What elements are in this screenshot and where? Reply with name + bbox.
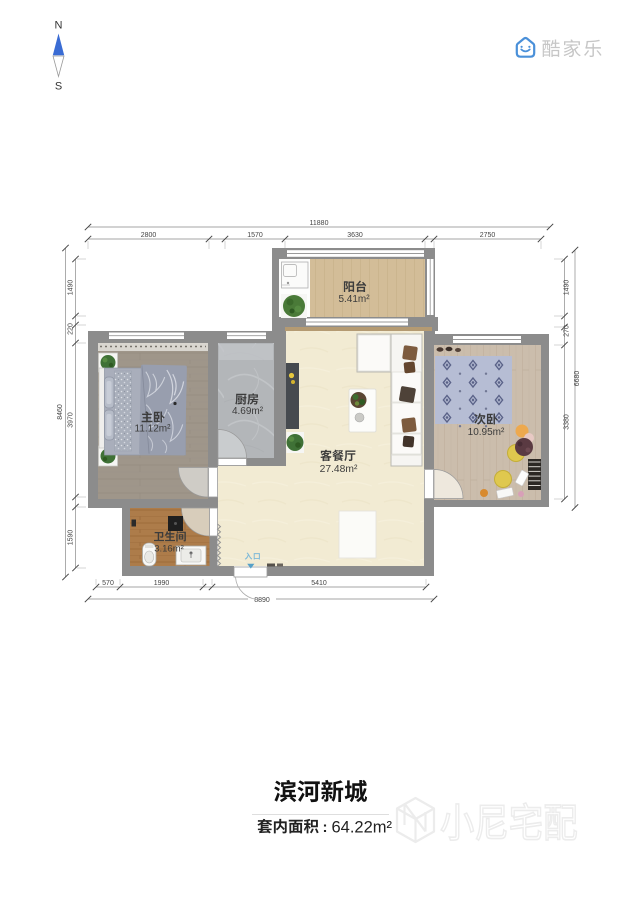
svg-text:2800: 2800 — [141, 232, 157, 239]
svg-text:1590: 1590 — [68, 530, 75, 546]
svg-text:5410: 5410 — [311, 580, 327, 587]
svg-text:570: 570 — [102, 580, 114, 587]
svg-text:3970: 3970 — [68, 412, 75, 428]
svg-text:6680: 6680 — [574, 371, 581, 387]
svg-text:1570: 1570 — [247, 232, 263, 239]
svg-text:2750: 2750 — [480, 232, 496, 239]
svg-text:8460: 8460 — [57, 404, 64, 420]
svg-text:1990: 1990 — [154, 580, 170, 587]
svg-text:220: 220 — [68, 323, 75, 335]
svg-text:11.12m²: 11.12m² — [135, 424, 172, 435]
svg-text:10.95m²: 10.95m² — [468, 427, 505, 438]
svg-text:S: S — [55, 81, 62, 93]
svg-text:8890: 8890 — [254, 597, 270, 604]
svg-text:11880: 11880 — [310, 220, 329, 227]
svg-text:N: N — [55, 20, 63, 32]
svg-text:3630: 3630 — [347, 232, 363, 239]
svg-text:4.69m²: 4.69m² — [232, 406, 264, 417]
svg-text:3.16m²: 3.16m² — [154, 544, 184, 555]
svg-text:27.48m²: 27.48m² — [320, 464, 358, 475]
svg-text:1490: 1490 — [68, 280, 75, 296]
svg-text::: : — [323, 819, 328, 836]
svg-text:270: 270 — [564, 325, 571, 337]
svg-text:64.22m²: 64.22m² — [332, 819, 393, 837]
svg-text:1490: 1490 — [564, 280, 571, 296]
svg-text:5.41m²: 5.41m² — [338, 294, 370, 305]
svg-text:3380: 3380 — [564, 414, 571, 430]
